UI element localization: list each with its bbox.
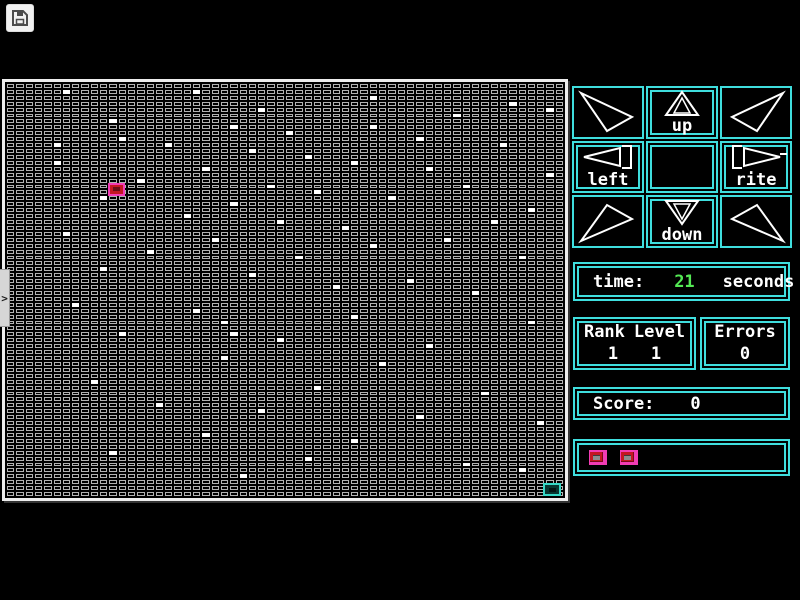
maze-cell	[379, 273, 386, 277]
maze-cell	[72, 409, 79, 413]
maze-cell	[546, 256, 553, 260]
maze-cell	[81, 468, 88, 472]
maze-cell	[147, 96, 154, 100]
maze-cell	[388, 332, 395, 336]
maze-cell	[323, 451, 330, 455]
maze-cell	[165, 96, 172, 100]
maze-cell	[416, 190, 423, 194]
maze-cell	[165, 468, 172, 472]
maze-cell	[407, 427, 414, 431]
maze-cell	[221, 486, 228, 490]
maze-cell	[453, 315, 460, 319]
maze-cell	[7, 185, 14, 189]
maze-cell	[463, 374, 470, 378]
maze-cell	[240, 439, 247, 443]
maze-cell	[221, 463, 228, 467]
maze-cell	[26, 114, 33, 118]
maze-cell	[128, 108, 135, 112]
maze-cell	[416, 344, 423, 348]
maze-cell	[258, 397, 265, 401]
maze-cell	[165, 332, 172, 336]
maze-cell	[26, 474, 33, 478]
maze-cell	[370, 232, 377, 236]
maze-cell	[100, 362, 107, 366]
maze-cell	[100, 427, 107, 431]
maze-cell	[221, 439, 228, 443]
maze-cell	[398, 350, 405, 354]
maze-cell	[407, 326, 414, 330]
maze-cell	[147, 427, 154, 431]
maze-cell	[7, 202, 14, 206]
maze-cell	[360, 315, 367, 319]
maze-cell	[156, 421, 163, 425]
dpad-down-right-button[interactable]	[720, 195, 792, 248]
maze-cell	[472, 332, 479, 336]
maze-cell	[295, 332, 302, 336]
maze-cell	[379, 374, 386, 378]
maze-cell	[500, 386, 507, 390]
maze-cell	[63, 214, 70, 218]
maze-cell	[370, 149, 377, 153]
maze-cell	[63, 167, 70, 171]
maze-cell	[137, 486, 144, 490]
maze-cell	[26, 463, 33, 467]
maze-cell	[72, 321, 79, 325]
maze-cell	[81, 214, 88, 218]
maze-cell	[119, 155, 126, 159]
maze-cell	[398, 309, 405, 313]
maze-cell	[519, 451, 526, 455]
maze-cell	[249, 137, 256, 141]
maze-cell	[258, 279, 265, 283]
maze-cell	[379, 403, 386, 407]
maze-cell	[388, 457, 395, 461]
maze-cell	[240, 90, 247, 94]
maze-cell	[333, 380, 340, 384]
maze-cell	[63, 102, 70, 106]
maze-cell	[416, 427, 423, 431]
maze-cell	[109, 273, 116, 277]
maze-cell	[119, 161, 126, 165]
maze-cell	[156, 480, 163, 484]
maze-cell	[174, 427, 181, 431]
maze-cell	[360, 368, 367, 372]
maze-cell	[128, 90, 135, 94]
maze-cell	[128, 374, 135, 378]
maze-cell	[72, 463, 79, 467]
maze-cell	[546, 232, 553, 236]
maze-cell	[453, 427, 460, 431]
maze-cell	[305, 421, 312, 425]
maze-cell	[388, 374, 395, 378]
maze-cell	[26, 256, 33, 260]
maze-cell	[109, 332, 116, 336]
maze-cell	[202, 208, 209, 212]
maze-cell	[463, 368, 470, 372]
maze-cell	[258, 350, 265, 354]
maze-cell	[388, 492, 395, 496]
maze-cell	[379, 326, 386, 330]
maze-cell	[72, 397, 79, 401]
maze-cell	[7, 196, 14, 200]
maze-cell	[426, 149, 433, 153]
maze-cell	[184, 173, 191, 177]
maze-cell	[379, 232, 386, 236]
maze-cell	[491, 321, 498, 325]
maze-cell	[91, 297, 98, 301]
maze-cell	[258, 102, 265, 106]
maze-cell	[379, 220, 386, 224]
maze-cell	[463, 155, 470, 159]
maze-cell	[156, 102, 163, 106]
maze-cell	[147, 185, 154, 189]
maze-cell	[305, 285, 312, 289]
maze-cell-lit	[416, 415, 423, 419]
maze-cell	[212, 202, 219, 206]
maze-cell	[147, 392, 154, 396]
maze-cell	[519, 279, 526, 283]
maze-cell	[398, 409, 405, 413]
maze-cell	[481, 226, 488, 230]
maze-cell	[267, 397, 274, 401]
maze-cell	[323, 279, 330, 283]
maze-cell	[212, 143, 219, 147]
maze-cell	[277, 291, 284, 295]
maze-cell	[528, 409, 535, 413]
maze-cell	[212, 397, 219, 401]
maze-cell	[165, 161, 172, 165]
maze-cell	[277, 267, 284, 271]
maze-cell	[81, 356, 88, 360]
maze-cell	[63, 250, 70, 254]
maze-cell	[174, 90, 181, 94]
maze-cell	[72, 208, 79, 212]
maze-cell	[174, 250, 181, 254]
maze-cell	[472, 119, 479, 123]
maze-cell	[26, 468, 33, 472]
maze-cell	[26, 321, 33, 325]
maze-cell	[444, 196, 451, 200]
maze-cell	[119, 463, 126, 467]
maze-cell	[537, 137, 544, 141]
maze-cell	[444, 125, 451, 129]
maze-cell	[44, 368, 51, 372]
maze-cell	[128, 350, 135, 354]
maze-cell	[546, 409, 553, 413]
maze-cell	[63, 96, 70, 100]
maze-cell	[472, 261, 479, 265]
maze-cell	[398, 386, 405, 390]
maze-cell	[35, 279, 42, 283]
maze-cell	[370, 279, 377, 283]
maze-cell	[147, 338, 154, 342]
maze-cell	[546, 427, 553, 431]
maze-cell	[137, 114, 144, 118]
maze-cell	[35, 409, 42, 413]
maze-cell	[444, 279, 451, 283]
maze-cell	[351, 238, 358, 242]
maze-cell	[267, 250, 274, 254]
maze-cell	[26, 102, 33, 106]
maze-cell	[267, 285, 274, 289]
maze-cell	[184, 285, 191, 289]
maze-cell	[91, 480, 98, 484]
maze-cell	[54, 397, 61, 401]
maze-cell	[379, 119, 386, 123]
maze-cell	[286, 167, 293, 171]
maze-cell	[63, 226, 70, 230]
maze-cell	[202, 445, 209, 449]
maze-cell	[323, 368, 330, 372]
maze-cell	[323, 457, 330, 461]
maze-cell	[267, 468, 274, 472]
maze-cell	[435, 309, 442, 313]
maze-cell	[230, 451, 237, 455]
maze-cell	[286, 445, 293, 449]
maze-cell	[463, 232, 470, 236]
maze-cell	[472, 474, 479, 478]
maze-cell	[463, 96, 470, 100]
maze-cell	[556, 433, 563, 437]
dpad-down-button[interactable]: down	[646, 195, 718, 248]
maze-cell	[388, 179, 395, 183]
maze-cell	[267, 315, 274, 319]
maze-cell	[184, 108, 191, 112]
maze-cell	[137, 119, 144, 123]
maze-cell	[556, 185, 563, 189]
maze-cell	[54, 463, 61, 467]
maze-cell	[481, 256, 488, 260]
maze-cell	[314, 143, 321, 147]
maze-cell	[230, 350, 237, 354]
maze-cell	[388, 285, 395, 289]
maze-cell	[528, 356, 535, 360]
maze-cell	[500, 226, 507, 230]
maze-cell-lit	[91, 380, 98, 384]
maze-cell	[128, 131, 135, 135]
maze-cell	[202, 368, 209, 372]
maze-cell	[370, 474, 377, 478]
maze-cell	[109, 256, 116, 260]
maze-cell	[147, 220, 154, 224]
maze-cell	[333, 149, 340, 153]
maze-cell	[528, 457, 535, 461]
dpad-left-button[interactable]: left	[572, 141, 644, 194]
maze-cell	[128, 232, 135, 236]
maze-cell	[202, 102, 209, 106]
maze-cell	[509, 350, 516, 354]
maze-cell	[351, 427, 358, 431]
maze-cell	[119, 196, 126, 200]
maze-cell	[72, 114, 79, 118]
save-button[interactable]	[6, 4, 34, 32]
maze-cell	[249, 451, 256, 455]
maze-cell	[370, 350, 377, 354]
maze-cell	[109, 137, 116, 141]
dpad-up-button[interactable]: up	[646, 86, 718, 139]
maze-cell	[491, 486, 498, 490]
maze-cell	[333, 119, 340, 123]
maze-cell	[137, 321, 144, 325]
maze-cell	[221, 445, 228, 449]
maze-cell	[388, 463, 395, 467]
maze-cell	[267, 114, 274, 118]
maze-cell	[81, 185, 88, 189]
maze-cell	[333, 480, 340, 484]
maze-cell	[147, 445, 154, 449]
maze-cell	[360, 244, 367, 248]
maze-cell	[463, 386, 470, 390]
maze-cell	[137, 309, 144, 313]
maze-cell	[193, 196, 200, 200]
maze-cell	[360, 291, 367, 295]
maze-cell	[63, 179, 70, 183]
maze-cell	[351, 397, 358, 401]
maze-cell	[370, 102, 377, 106]
maze-cell	[16, 397, 23, 401]
maze-cell-lit	[240, 474, 247, 478]
maze-cell	[26, 119, 33, 123]
maze-cell	[286, 267, 293, 271]
maze-cell	[295, 102, 302, 106]
maze-cell	[444, 173, 451, 177]
maze-cell	[91, 374, 98, 378]
maze-cell	[156, 374, 163, 378]
maze-cell	[249, 102, 256, 106]
maze-grid	[7, 84, 563, 496]
maze-cell	[35, 102, 42, 106]
maze-cell	[500, 285, 507, 289]
maze-cell	[500, 321, 507, 325]
maze-cell	[100, 321, 107, 325]
maze-cell	[7, 190, 14, 194]
dpad-up-right-button[interactable]	[720, 86, 792, 139]
maze-cell	[528, 232, 535, 236]
maze-cell	[35, 220, 42, 224]
maze-cell	[556, 155, 563, 159]
maze-cell	[54, 427, 61, 431]
maze-cell	[305, 149, 312, 153]
maze-cell	[360, 250, 367, 254]
maze-cell	[472, 267, 479, 271]
maze-cell	[267, 125, 274, 129]
side-panel-toggle[interactable]: >	[0, 269, 10, 327]
maze-cell	[333, 386, 340, 390]
maze-cell	[267, 326, 274, 330]
dpad-rite-button[interactable]: rite	[720, 141, 792, 194]
maze-cell	[54, 256, 61, 260]
maze-cell	[333, 185, 340, 189]
maze-cell	[398, 208, 405, 212]
maze-cell	[100, 338, 107, 342]
maze-cell	[119, 261, 126, 265]
maze-cell	[137, 433, 144, 437]
maze-cell	[295, 131, 302, 135]
maze-cell	[453, 409, 460, 413]
maze-cell	[407, 155, 414, 159]
maze-cell	[351, 285, 358, 289]
maze-cell	[249, 214, 256, 218]
maze-cell	[193, 232, 200, 236]
maze-cell	[221, 415, 228, 419]
maze-cell	[128, 173, 135, 177]
maze-cell	[202, 108, 209, 112]
maze-cell	[295, 433, 302, 437]
maze-cell	[72, 421, 79, 425]
maze-cell	[249, 486, 256, 490]
maze-cell	[100, 421, 107, 425]
dpad-up-left-button[interactable]	[572, 86, 644, 139]
maze-cell	[444, 332, 451, 336]
maze-cell	[128, 439, 135, 443]
maze-cell	[7, 427, 14, 431]
maze-cell	[388, 439, 395, 443]
maze-cell	[81, 397, 88, 401]
maze-cell	[81, 457, 88, 461]
maze-cell	[398, 173, 405, 177]
maze-cell	[16, 220, 23, 224]
maze-cell	[26, 238, 33, 242]
maze-cell	[509, 374, 516, 378]
maze-cell	[472, 433, 479, 437]
maze-cell	[463, 250, 470, 254]
maze-cell	[509, 291, 516, 295]
maze-cell	[63, 480, 70, 484]
dpad-down-label: down	[662, 227, 703, 244]
maze-cell	[258, 196, 265, 200]
maze-cell-lit	[314, 386, 321, 390]
maze-cell	[537, 285, 544, 289]
maze-cell	[16, 155, 23, 159]
maze-cell	[444, 297, 451, 301]
maze-cell	[295, 474, 302, 478]
maze-cell	[156, 125, 163, 129]
maze-cell	[519, 492, 526, 496]
maze-cell	[360, 326, 367, 330]
maze-cell	[500, 350, 507, 354]
maze-cell	[370, 362, 377, 366]
maze-cell	[342, 208, 349, 212]
maze-cell	[7, 256, 14, 260]
maze-cell	[398, 344, 405, 348]
maze-cell	[147, 409, 154, 413]
maze-cell	[333, 463, 340, 467]
maze-cell	[491, 403, 498, 407]
maze-cell	[54, 244, 61, 248]
maze-cell	[360, 167, 367, 171]
maze-cell	[165, 338, 172, 342]
maze-cell	[240, 96, 247, 100]
maze-cell	[435, 273, 442, 277]
maze-cell	[463, 84, 470, 88]
maze-cell	[16, 403, 23, 407]
maze-cell	[230, 386, 237, 390]
maze-cell	[147, 190, 154, 194]
maze-cell	[156, 149, 163, 153]
maze-cell	[463, 332, 470, 336]
maze-cell	[286, 451, 293, 455]
maze-cell	[351, 143, 358, 147]
maze-cell	[481, 421, 488, 425]
maze-cell	[537, 332, 544, 336]
maze-cell	[109, 397, 116, 401]
maze-cell	[184, 137, 191, 141]
dpad-down-left-button[interactable]	[572, 195, 644, 248]
maze-cell	[277, 125, 284, 129]
maze-cell	[342, 445, 349, 449]
maze-cell	[26, 196, 33, 200]
maze-cell	[481, 102, 488, 106]
